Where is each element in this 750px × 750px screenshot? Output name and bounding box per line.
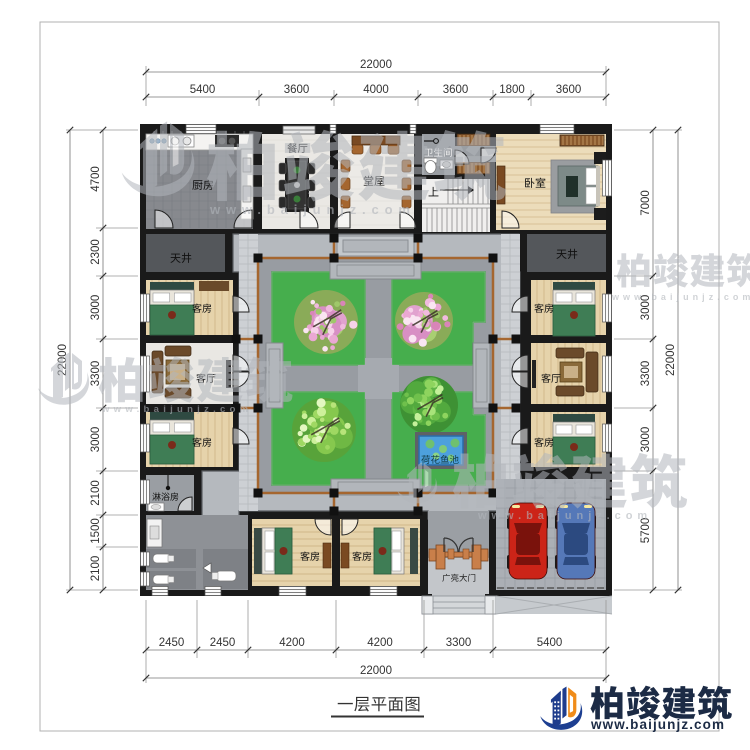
svg-text:4000: 4000 bbox=[363, 84, 389, 96]
svg-text:www.baijunjz.com: www.baijunjz.com bbox=[590, 717, 725, 732]
svg-text:www.baijunjz.com: www.baijunjz.com bbox=[611, 292, 750, 302]
svg-text:1500: 1500 bbox=[90, 518, 102, 544]
svg-text:2100: 2100 bbox=[90, 480, 102, 506]
svg-text:3000: 3000 bbox=[90, 427, 102, 453]
svg-text:5400: 5400 bbox=[190, 84, 216, 96]
svg-text:4200: 4200 bbox=[367, 637, 393, 649]
svg-text:3600: 3600 bbox=[284, 84, 310, 96]
svg-text:2450: 2450 bbox=[210, 637, 236, 649]
svg-text:5400: 5400 bbox=[537, 637, 563, 649]
svg-text:3600: 3600 bbox=[443, 84, 469, 96]
svg-text:2100: 2100 bbox=[90, 556, 102, 582]
svg-text:4200: 4200 bbox=[279, 637, 305, 649]
svg-text:22000: 22000 bbox=[360, 59, 392, 71]
svg-text:2300: 2300 bbox=[90, 239, 102, 265]
svg-text:22000: 22000 bbox=[665, 344, 677, 376]
svg-text:3300: 3300 bbox=[446, 637, 472, 649]
svg-text:www.baijunjz.com: www.baijunjz.com bbox=[101, 404, 252, 415]
svg-text:3600: 3600 bbox=[556, 84, 582, 96]
svg-text:3000: 3000 bbox=[640, 427, 652, 453]
svg-text:1800: 1800 bbox=[499, 84, 525, 96]
svg-text:www.baijunjz.com: www.baijunjz.com bbox=[209, 202, 416, 217]
svg-text:4700: 4700 bbox=[90, 166, 102, 192]
svg-text:3300: 3300 bbox=[640, 361, 652, 387]
svg-text:7000: 7000 bbox=[640, 190, 652, 216]
svg-text:2450: 2450 bbox=[159, 637, 185, 649]
svg-text:22000: 22000 bbox=[360, 665, 392, 677]
svg-text:3000: 3000 bbox=[90, 295, 102, 321]
svg-text:3300: 3300 bbox=[90, 361, 102, 387]
svg-text:www.baijunjz.com: www.baijunjz.com bbox=[477, 510, 652, 522]
